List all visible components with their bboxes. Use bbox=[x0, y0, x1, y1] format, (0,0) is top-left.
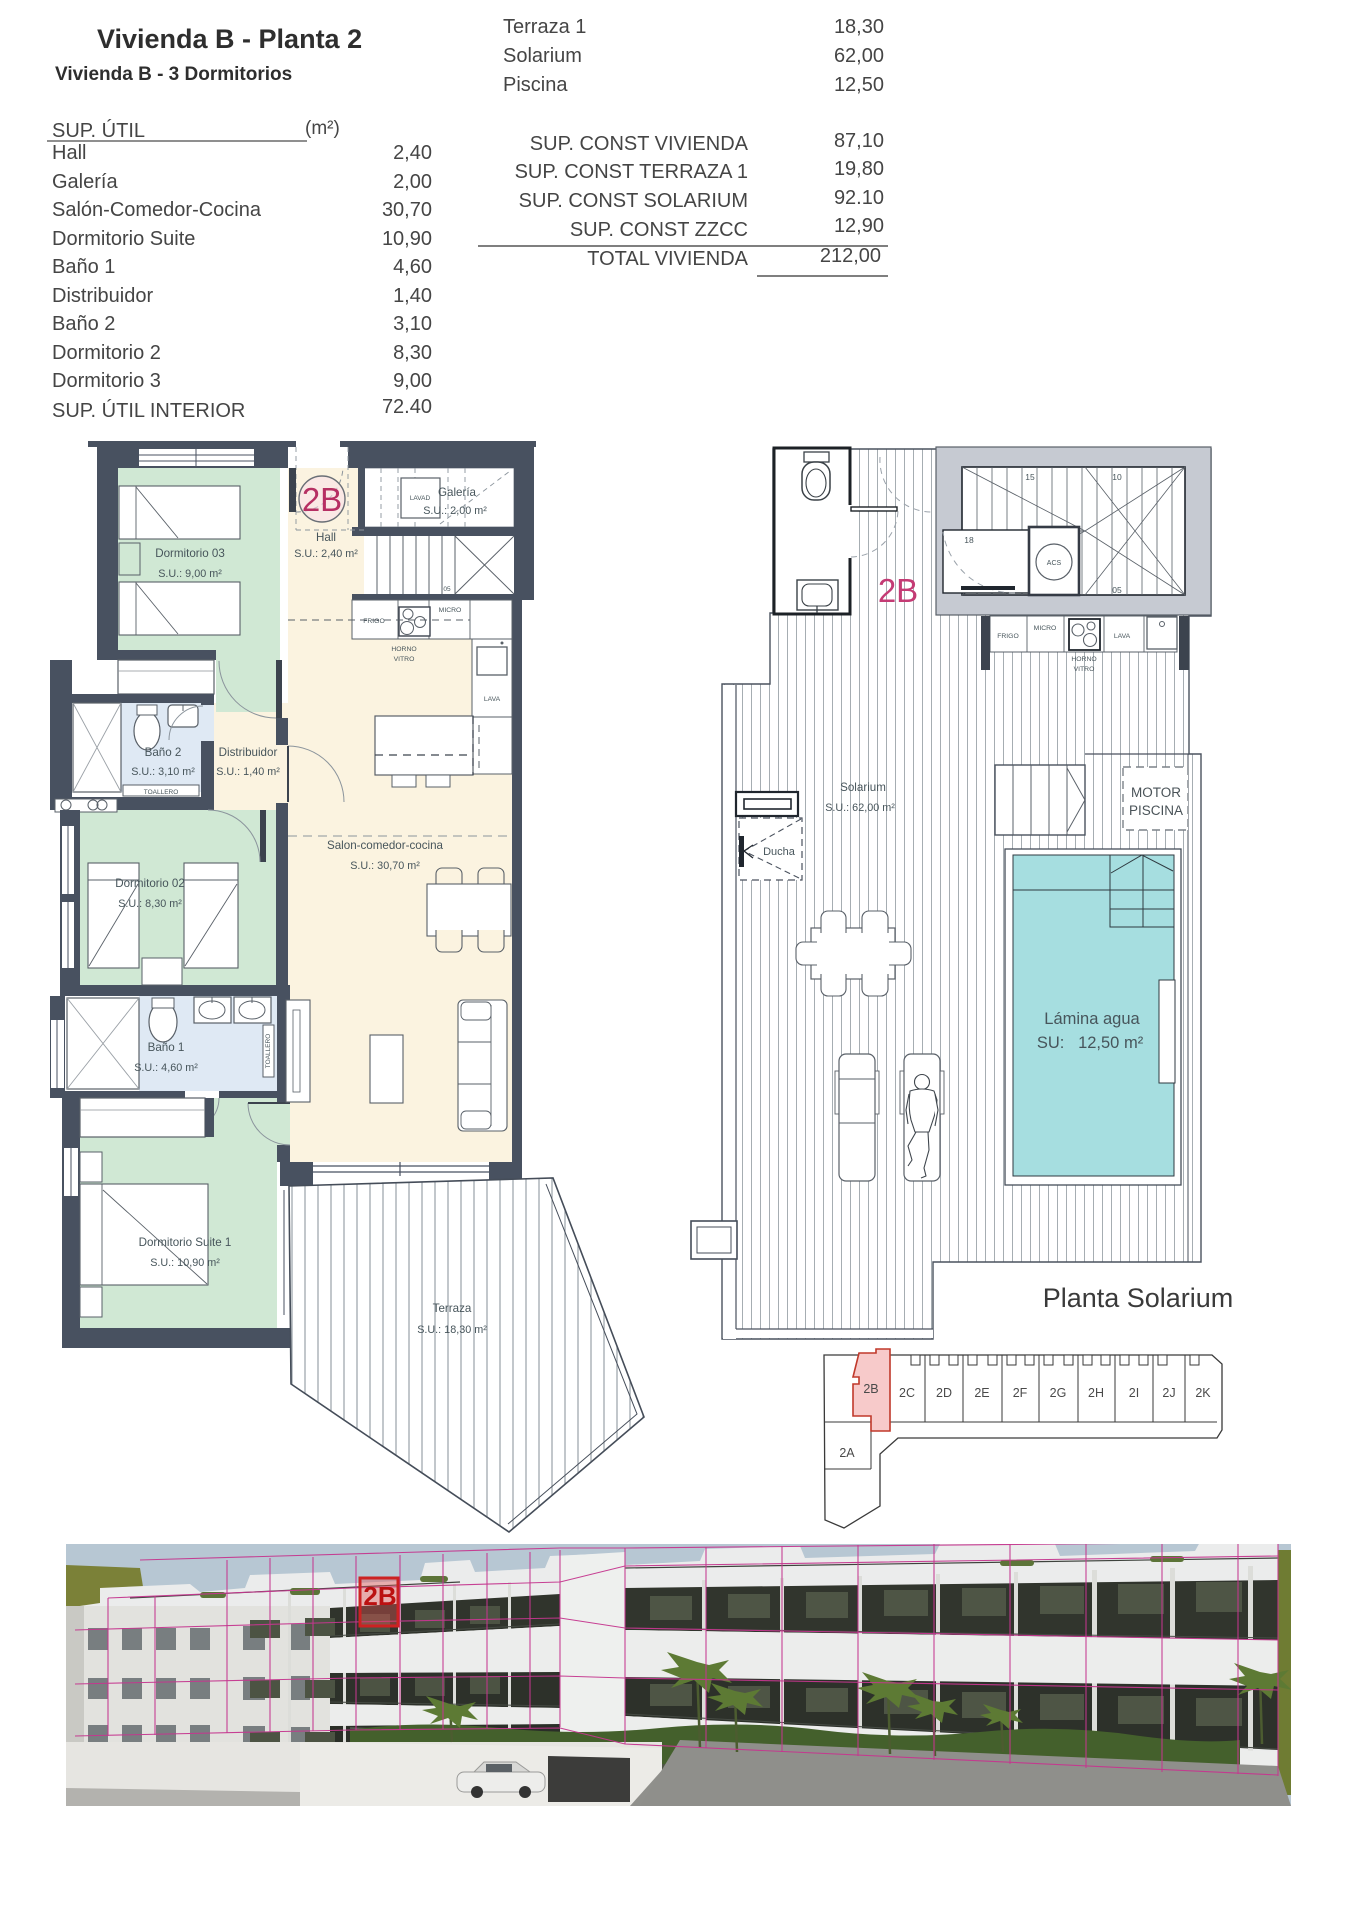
svg-text:Dormitorio 02: Dormitorio 02 bbox=[115, 877, 185, 890]
svg-text:Baño 2: Baño 2 bbox=[52, 313, 115, 335]
svg-text:18,30: 18,30 bbox=[834, 16, 884, 38]
svg-text:S.U.: 8,30 m²: S.U.: 8,30 m² bbox=[118, 898, 182, 910]
svg-text:4,60: 4,60 bbox=[393, 256, 432, 278]
svg-text:212,00: 212,00 bbox=[820, 245, 881, 267]
svg-text:2G: 2G bbox=[1050, 1386, 1067, 1400]
svg-text:Dormitorio 3: Dormitorio 3 bbox=[52, 370, 161, 392]
svg-text:Lámina agua: Lámina agua bbox=[1044, 1010, 1140, 1028]
svg-text:Dormitorio Suite: Dormitorio Suite bbox=[52, 228, 195, 250]
svg-text:10: 10 bbox=[1112, 472, 1122, 482]
svg-text:Vivienda B - 3 Dormitorios: Vivienda B - 3 Dormitorios bbox=[55, 64, 292, 85]
svg-text:Salon-comedor-cocina: Salon-comedor-cocina bbox=[327, 839, 444, 852]
svg-text:2H: 2H bbox=[1088, 1386, 1104, 1400]
svg-text:92.10: 92.10 bbox=[834, 187, 884, 209]
svg-text:2C: 2C bbox=[899, 1386, 915, 1400]
svg-text:VITRO: VITRO bbox=[1074, 666, 1095, 673]
svg-text:2J: 2J bbox=[1162, 1386, 1175, 1400]
svg-text:Dormitorio Suite 1: Dormitorio Suite 1 bbox=[139, 1236, 232, 1249]
svg-text:Dormitorio 03: Dormitorio 03 bbox=[155, 547, 225, 560]
svg-text:(m²): (m²) bbox=[305, 118, 340, 139]
svg-text:2A: 2A bbox=[839, 1446, 855, 1460]
svg-text:15: 15 bbox=[1025, 472, 1035, 482]
svg-text:S.U.: 3,10 m²: S.U.: 3,10 m² bbox=[131, 766, 195, 778]
svg-text:HORNO: HORNO bbox=[391, 646, 416, 653]
svg-text:Solarium: Solarium bbox=[503, 45, 582, 67]
svg-text:8,30: 8,30 bbox=[393, 342, 432, 364]
svg-text:05: 05 bbox=[443, 586, 451, 593]
svg-text:Hall: Hall bbox=[316, 531, 336, 544]
svg-text:10,90: 10,90 bbox=[382, 228, 432, 250]
svg-text:LAVA: LAVA bbox=[1114, 633, 1131, 640]
svg-text:HORNO: HORNO bbox=[1071, 656, 1096, 663]
svg-text:SUP. CONST SOLARIUM: SUP. CONST SOLARIUM bbox=[519, 190, 748, 212]
svg-text:9,00: 9,00 bbox=[393, 370, 432, 392]
svg-text:S.U.: 10,90 m²: S.U.: 10,90 m² bbox=[150, 1257, 220, 1269]
svg-text:S.U.: 4,60 m²: S.U.: 4,60 m² bbox=[134, 1062, 198, 1074]
svg-text:2E: 2E bbox=[974, 1386, 989, 1400]
svg-text:FRIGO: FRIGO bbox=[997, 633, 1019, 640]
svg-text:SU: 12,50 m²: SU: 12,50 m² bbox=[1037, 1034, 1144, 1052]
svg-text:12,90: 12,90 bbox=[834, 215, 884, 237]
svg-text:S.U.: 30,70 m²: S.U.: 30,70 m² bbox=[350, 860, 420, 872]
svg-text:VITRO: VITRO bbox=[394, 656, 415, 663]
svg-text:S.U.: 2,40 m²: S.U.: 2,40 m² bbox=[294, 548, 358, 560]
svg-text:FRIGO: FRIGO bbox=[363, 618, 385, 625]
svg-text:05: 05 bbox=[1112, 585, 1122, 595]
svg-text:S.U.: 1,40 m²: S.U.: 1,40 m² bbox=[216, 766, 280, 778]
svg-text:62,00: 62,00 bbox=[834, 45, 884, 67]
svg-text:Galería: Galería bbox=[52, 171, 118, 193]
svg-text:SUP. CONST TERRAZA 1: SUP. CONST TERRAZA 1 bbox=[515, 161, 748, 183]
svg-text:Vivienda B - Planta 2: Vivienda B - Planta 2 bbox=[97, 24, 362, 54]
svg-text:2D: 2D bbox=[936, 1386, 952, 1400]
svg-text:Baño 1: Baño 1 bbox=[52, 256, 115, 278]
svg-text:2,00: 2,00 bbox=[393, 171, 432, 193]
svg-text:TOALLERO: TOALLERO bbox=[144, 789, 179, 796]
svg-text:2B: 2B bbox=[878, 572, 918, 609]
svg-text:SUP. ÚTIL: SUP. ÚTIL bbox=[52, 119, 145, 142]
svg-text:S.U.: 9,00 m²: S.U.: 9,00 m² bbox=[158, 568, 222, 580]
svg-text:TOALLERO: TOALLERO bbox=[265, 1034, 272, 1069]
svg-text:3,10: 3,10 bbox=[393, 313, 432, 335]
svg-text:TOTAL VIVIENDA: TOTAL VIVIENDA bbox=[587, 248, 748, 270]
svg-text:PISCINA: PISCINA bbox=[1129, 803, 1183, 818]
svg-text:Hall: Hall bbox=[52, 142, 86, 164]
svg-text:19,80: 19,80 bbox=[834, 158, 884, 180]
svg-text:SUP. CONST ZZCC: SUP. CONST ZZCC bbox=[570, 219, 748, 241]
svg-text:Terraza 1: Terraza 1 bbox=[503, 16, 586, 38]
svg-text:72.40: 72.40 bbox=[382, 396, 432, 418]
svg-text:18: 18 bbox=[964, 535, 974, 545]
svg-text:SUP. CONST VIVIENDA: SUP. CONST VIVIENDA bbox=[530, 133, 749, 155]
svg-text:2B: 2B bbox=[302, 481, 342, 518]
svg-text:Terraza: Terraza bbox=[433, 1302, 472, 1315]
svg-text:1,40: 1,40 bbox=[393, 285, 432, 307]
svg-text:Baño 2: Baño 2 bbox=[145, 746, 182, 759]
svg-text:Planta Solarium: Planta Solarium bbox=[1043, 1283, 1234, 1313]
svg-text:Distribuidor: Distribuidor bbox=[219, 746, 278, 759]
svg-text:2F: 2F bbox=[1013, 1386, 1028, 1400]
svg-text:S.U.: 2,00 m²: S.U.: 2,00 m² bbox=[423, 505, 487, 517]
svg-text:12,50: 12,50 bbox=[834, 74, 884, 96]
svg-text:Distribuidor: Distribuidor bbox=[52, 285, 153, 307]
svg-text:LAVA: LAVA bbox=[484, 696, 501, 703]
svg-text:2B: 2B bbox=[863, 1382, 878, 1396]
svg-text:S.U.: 62,00 m²: S.U.: 62,00 m² bbox=[825, 802, 895, 814]
svg-text:LAVAD: LAVAD bbox=[410, 495, 431, 502]
svg-text:Piscina: Piscina bbox=[503, 74, 568, 96]
svg-text:Salón-Comedor-Cocina: Salón-Comedor-Cocina bbox=[52, 199, 262, 221]
svg-text:30,70: 30,70 bbox=[382, 199, 432, 221]
svg-text:2,40: 2,40 bbox=[393, 142, 432, 164]
svg-text:Baño 1: Baño 1 bbox=[148, 1041, 185, 1054]
svg-text:MICRO: MICRO bbox=[1034, 625, 1057, 632]
svg-text:Solarium: Solarium bbox=[840, 781, 886, 794]
svg-text:SUP. ÚTIL INTERIOR: SUP. ÚTIL INTERIOR bbox=[52, 399, 245, 422]
svg-text:87,10: 87,10 bbox=[834, 130, 884, 152]
svg-text:MOTOR: MOTOR bbox=[1131, 785, 1181, 800]
svg-text:2I: 2I bbox=[1129, 1386, 1139, 1400]
svg-text:Dormitorio 2: Dormitorio 2 bbox=[52, 342, 161, 364]
svg-text:Ducha: Ducha bbox=[763, 846, 796, 858]
svg-text:2K: 2K bbox=[1195, 1386, 1211, 1400]
svg-text:MICRO: MICRO bbox=[439, 607, 462, 614]
svg-text:ACS: ACS bbox=[1047, 560, 1062, 567]
svg-text:2B: 2B bbox=[363, 1581, 396, 1611]
svg-text:S.U.: 18,30 m²: S.U.: 18,30 m² bbox=[417, 1324, 487, 1336]
svg-text:Galería: Galería bbox=[438, 486, 477, 499]
